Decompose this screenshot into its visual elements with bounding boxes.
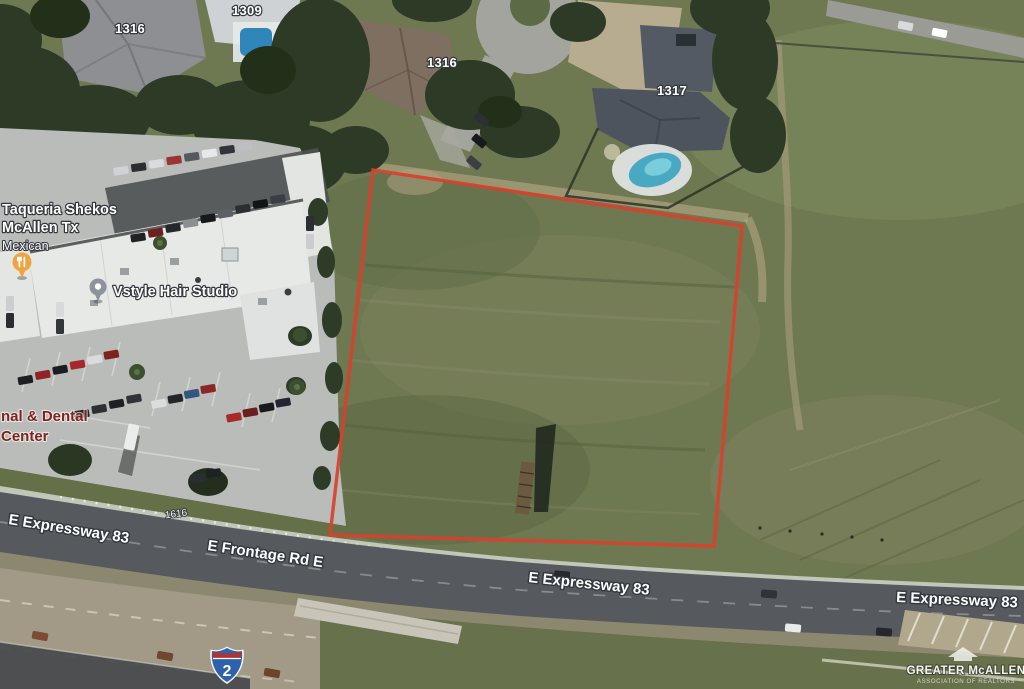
- poi-label-dental-line2: Center: [1, 428, 49, 445]
- address-label-1316-mid: 1316: [427, 55, 457, 70]
- shopping-center: [0, 128, 346, 546]
- poi-label-taqueria-line2: McAllen Tx: [2, 220, 79, 236]
- shield-route-number: 2: [223, 663, 232, 680]
- address-label-1317: 1317: [657, 83, 687, 98]
- poi-category-mexican: Mexican: [2, 239, 49, 253]
- address-label-1309: 1309: [232, 3, 262, 18]
- watermark-title: GREATER McALLEN: [907, 665, 1024, 677]
- pool-1317: [612, 144, 692, 196]
- satellite-map[interactable]: 1309 1316 1316 1317 1616 Taqueria Shekos…: [0, 0, 1024, 689]
- address-label-1316-left: 1316: [115, 21, 145, 36]
- poi-label-taqueria-line1: Taqueria Shekos: [2, 202, 117, 218]
- poi-label-dental-line1: nal & Dental: [1, 408, 88, 425]
- satellite-image: 1309 1316 1316 1317 1616 Taqueria Shekos…: [0, 0, 1024, 689]
- watermark-subtitle: ASSOCIATION OF REALTORS: [917, 678, 1015, 685]
- poi-label-vstyle: Vstyle Hair Studio: [113, 284, 237, 300]
